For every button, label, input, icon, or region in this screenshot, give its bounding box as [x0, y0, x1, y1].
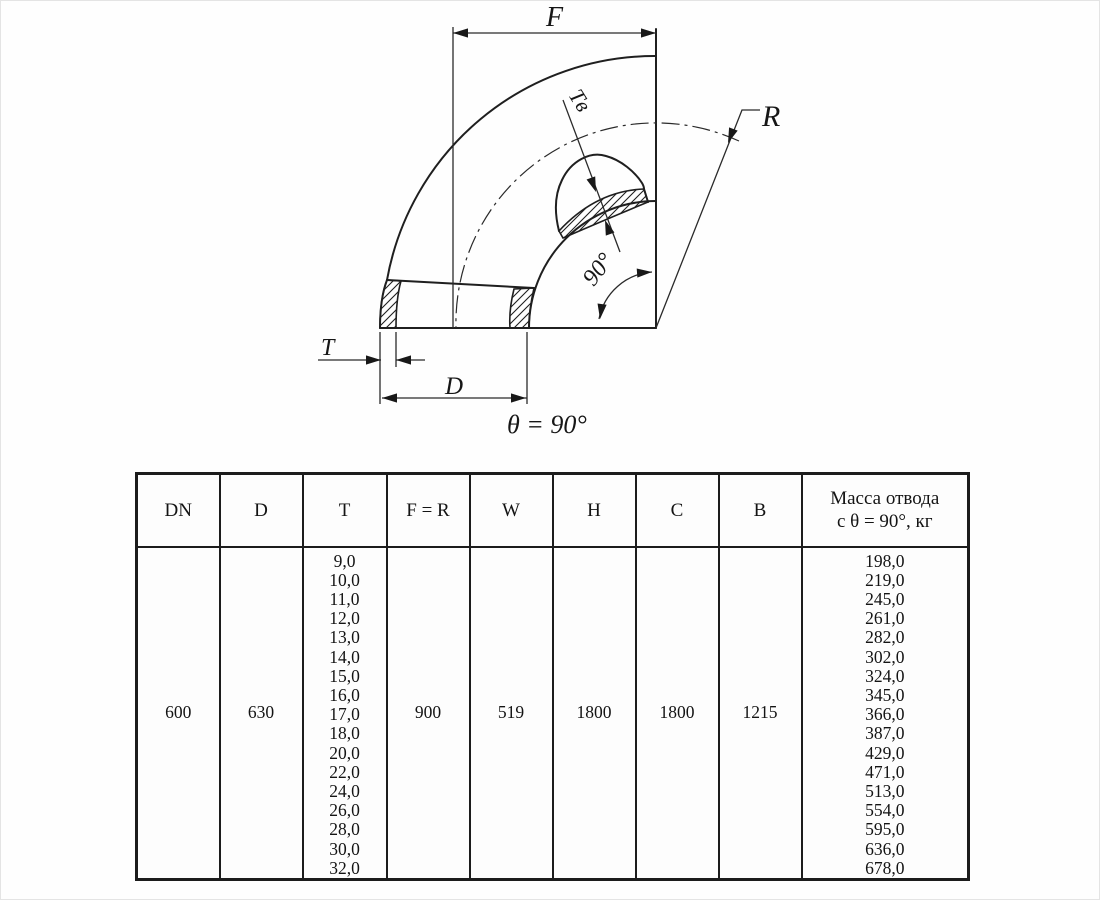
header-fr: F = R [387, 474, 470, 547]
value-line: 22,0 [304, 763, 386, 782]
label-r: R [761, 100, 780, 133]
header-h: H [553, 474, 636, 547]
header-c: C [636, 474, 719, 547]
value-line: 387,0 [803, 724, 968, 743]
value-line: 17,0 [304, 705, 386, 724]
cell-t-values: 9,010,011,012,013,014,015,016,017,018,02… [303, 547, 387, 880]
value-line: 9,0 [304, 552, 386, 571]
header-b: B [719, 474, 802, 547]
arrow-f-left [453, 28, 468, 37]
value-line: 28,0 [304, 820, 386, 839]
arrow-d-right [511, 393, 526, 402]
label-f: F [545, 2, 564, 33]
cell-dn: 600 [137, 547, 220, 880]
value-line: 219,0 [803, 571, 968, 590]
value-line: 678,0 [803, 859, 968, 878]
label-theta: θ = 90° [507, 410, 587, 439]
elbow-outer-arc [387, 56, 656, 280]
label-d: D [444, 373, 463, 400]
value-line: 282,0 [803, 628, 968, 647]
arrow-angle-upper [637, 267, 653, 277]
wall-section-left-hatch [380, 280, 401, 328]
cell-fr: 900 [387, 547, 470, 880]
header-mass-line2: с θ = 90°, кг [803, 510, 968, 533]
value-line: 636,0 [803, 840, 968, 859]
header-mass-line1: Масса отвода [803, 487, 968, 510]
value-line: 20,0 [304, 744, 386, 763]
value-line: 554,0 [803, 801, 968, 820]
header-dn: DN [137, 474, 220, 547]
arrow-t-left [366, 355, 381, 364]
arrow-angle-lower [595, 304, 606, 320]
value-line: 595,0 [803, 820, 968, 839]
value-line: 16,0 [304, 686, 386, 705]
arrow-tv-upper [587, 176, 601, 193]
value-line: 10,0 [304, 571, 386, 590]
value-line: 30,0 [304, 840, 386, 859]
label-tv: Tв [564, 84, 597, 116]
header-d: D [220, 474, 303, 547]
cell-h: 1800 [553, 547, 636, 880]
value-line: 13,0 [304, 628, 386, 647]
arrow-t-right [396, 355, 411, 364]
value-line: 245,0 [803, 590, 968, 609]
technical-drawing-page: F R T D Tв 90° θ = 90° DN D T F = R W H … [0, 0, 1100, 900]
value-line: 18,0 [304, 724, 386, 743]
label-t: T [321, 335, 336, 361]
value-line: 14,0 [304, 648, 386, 667]
leader-r-line [656, 110, 760, 328]
value-line: 32,0 [304, 859, 386, 878]
value-line: 198,0 [803, 552, 968, 571]
value-line: 324,0 [803, 667, 968, 686]
cell-w: 519 [470, 547, 553, 880]
cell-mass-values: 198,0219,0245,0261,0282,0302,0324,0345,0… [802, 547, 969, 880]
cell-d: 630 [220, 547, 303, 880]
value-line: 302,0 [803, 648, 968, 667]
value-line: 11,0 [304, 590, 386, 609]
value-line: 12,0 [304, 609, 386, 628]
arrow-f-right [641, 28, 656, 37]
value-line: 15,0 [304, 667, 386, 686]
top-opening-wall-hatch [559, 189, 648, 238]
elbow-diagram: F R T D Tв 90° θ = 90° [1, 1, 1100, 466]
header-t: T [303, 474, 387, 547]
table-row: 600 630 9,010,011,012,013,014,015,016,01… [137, 547, 969, 880]
value-line: 513,0 [803, 782, 968, 801]
value-line: 471,0 [803, 763, 968, 782]
value-line: 345,0 [803, 686, 968, 705]
wall-section-right-hatch [510, 288, 534, 328]
value-line: 26,0 [304, 801, 386, 820]
value-line: 24,0 [304, 782, 386, 801]
header-w: W [470, 474, 553, 547]
arrow-d-left [382, 393, 397, 402]
value-line: 261,0 [803, 609, 968, 628]
elbow-dimensions-table: DN D T F = R W H C B Масса отвода с θ = … [135, 472, 970, 881]
table-header-row: DN D T F = R W H C B Масса отвода с θ = … [137, 474, 969, 547]
value-line: 429,0 [803, 744, 968, 763]
header-mass: Масса отвода с θ = 90°, кг [802, 474, 969, 547]
cell-b: 1215 [719, 547, 802, 880]
label-angle-90: 90° [578, 248, 619, 291]
value-line: 366,0 [803, 705, 968, 724]
cell-c: 1800 [636, 547, 719, 880]
